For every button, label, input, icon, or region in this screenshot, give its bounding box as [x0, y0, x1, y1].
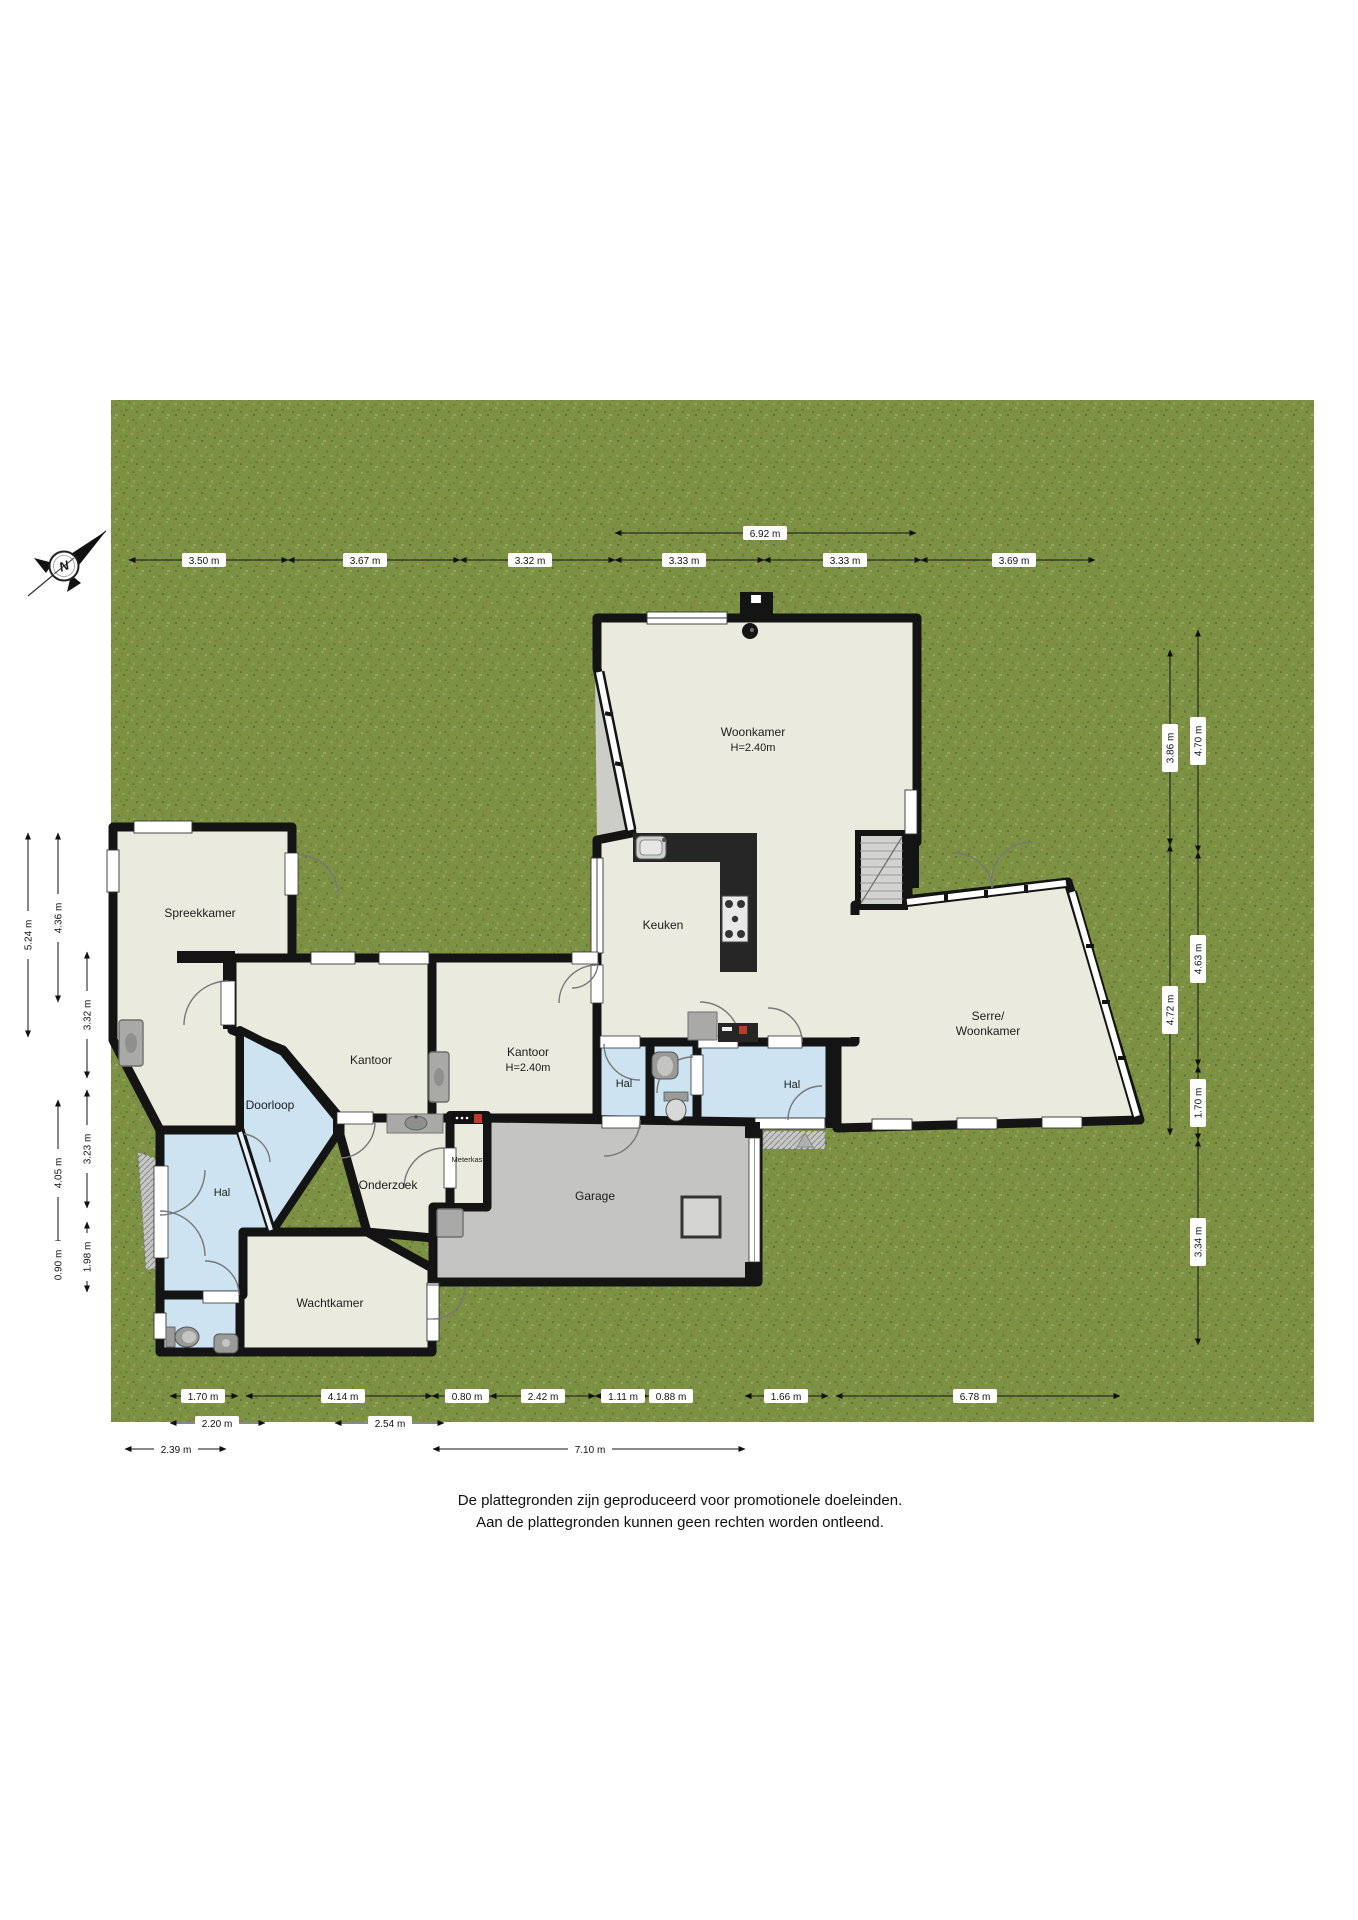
room-keuken-label: Keuken: [643, 918, 684, 932]
window: [107, 850, 119, 892]
window: [1042, 1117, 1082, 1128]
wall-hal-serre: [826, 1040, 840, 1128]
dim-label: 3.86 m: [1166, 733, 1177, 764]
garage-pit: [682, 1197, 720, 1237]
dim-label: 3.32 m: [83, 1000, 94, 1031]
dim-label: 1.11 m: [608, 1392, 638, 1403]
passage-woonkamer: [900, 962, 916, 1038]
entrance-mat-east: [763, 1131, 825, 1149]
dim-label: 4.72 m: [1166, 995, 1177, 1026]
room-wachtkamer-label: Wachtkamer: [297, 1296, 364, 1310]
room-kantoor2-floor: [432, 958, 597, 1118]
room-hal-west-label: Hal: [616, 1078, 633, 1090]
room-hal-east-floor: [697, 1042, 830, 1122]
dim-label: 4.36 m: [54, 903, 65, 934]
dim-label: 2.42 m: [528, 1392, 559, 1403]
onderzoek-counter: [387, 1114, 443, 1133]
window: [379, 952, 429, 964]
room-woonkamer-height: H=2.40m: [731, 742, 776, 754]
footer-disclaimer-line2: Aan de plattegronden kunnen geen rechten…: [476, 1514, 884, 1531]
staircase: [858, 833, 905, 907]
room-woonkamer-label: Woonkamer: [721, 725, 785, 739]
dim-label: 4.14 m: [328, 1392, 359, 1403]
window: [905, 790, 917, 834]
room-onderzoek-label: Onderzoek: [359, 1178, 419, 1192]
dim-label: 1.98 m: [83, 1242, 94, 1273]
dim-label: 3.23 m: [83, 1134, 94, 1165]
dim-label: 3.33 m: [830, 556, 861, 567]
window: [134, 821, 192, 833]
window: [311, 952, 355, 964]
window: [957, 1118, 997, 1129]
room-spreekkamer-label: Spreekkamer: [164, 906, 235, 920]
radiator-knob: [434, 1068, 444, 1086]
room-kantoor-label: Kantoor: [350, 1053, 392, 1067]
room-garage-label: Garage: [575, 1189, 615, 1203]
dim-label: 1.70 m: [188, 1392, 219, 1403]
dim-label: 2.54 m: [375, 1419, 406, 1430]
dim-label: 1.70 m: [1194, 1088, 1205, 1119]
dim-label: 3.33 m: [669, 556, 700, 567]
room-wachtkamer-floor: [240, 1232, 432, 1352]
stove-icon: [722, 896, 748, 942]
sink-icon: [636, 836, 666, 859]
floorplan-svg: N Woonkamer H=2.40m Keuken Serre/ Woonka…: [0, 0, 1358, 1920]
room-hal-entree-label: Hal: [214, 1187, 231, 1199]
room-kantoor2-label: Kantoor: [507, 1045, 549, 1059]
fireplace-icon: [742, 623, 758, 639]
room-doorloop-label: Doorloop: [246, 1098, 295, 1112]
dim-label: 4.70 m: [1194, 726, 1205, 757]
meterkast-meter: [452, 1113, 484, 1124]
window: [154, 1313, 166, 1339]
dim-label: 2.39 m: [161, 1445, 192, 1456]
dim-label: 0.88 m: [656, 1392, 687, 1403]
dim-label: 3.69 m: [999, 556, 1030, 567]
dim-label: 0.80 m: [452, 1392, 483, 1403]
dim-label: 3.34 m: [1194, 1227, 1205, 1258]
room-meterkast-label: Meterkast: [452, 1155, 486, 1164]
passage-serre: [847, 915, 863, 1037]
chimney: [740, 592, 773, 620]
dim-label: 4.05 m: [54, 1158, 65, 1189]
floorplan-page: N Woonkamer H=2.40m Keuken Serre/ Woonka…: [0, 0, 1358, 1920]
footer-disclaimer-line1: De plattegronden zijn geproduceerd voor …: [458, 1492, 902, 1509]
dim-label: 3.32 m: [515, 556, 546, 567]
dim-label: 7.10 m: [575, 1445, 606, 1456]
dim-label: 4.63 m: [1194, 944, 1205, 975]
dim-label: 0.90 m: [54, 1250, 65, 1281]
radiator-knob: [125, 1033, 137, 1053]
dim-label: 5.24 m: [24, 920, 35, 951]
room-serre-label-2: Woonkamer: [956, 1024, 1020, 1038]
dim-label: 6.92 m: [750, 529, 781, 540]
dim-label: 6.78 m: [960, 1392, 991, 1403]
room-hal-east-label: Hal: [784, 1079, 801, 1091]
dim-label: 2.20 m: [202, 1419, 233, 1430]
window: [755, 1118, 825, 1129]
dim-label: 1.66 m: [771, 1392, 802, 1403]
dim-label: 3.50 m: [189, 556, 220, 567]
room-serre-label-1: Serre/: [972, 1009, 1005, 1023]
room-kantoor2-height: H=2.40m: [506, 1062, 551, 1074]
fireplace-center: [750, 628, 754, 632]
window: [872, 1119, 912, 1130]
radiator: [437, 1209, 463, 1237]
dim-label: 3.67 m: [350, 556, 381, 567]
